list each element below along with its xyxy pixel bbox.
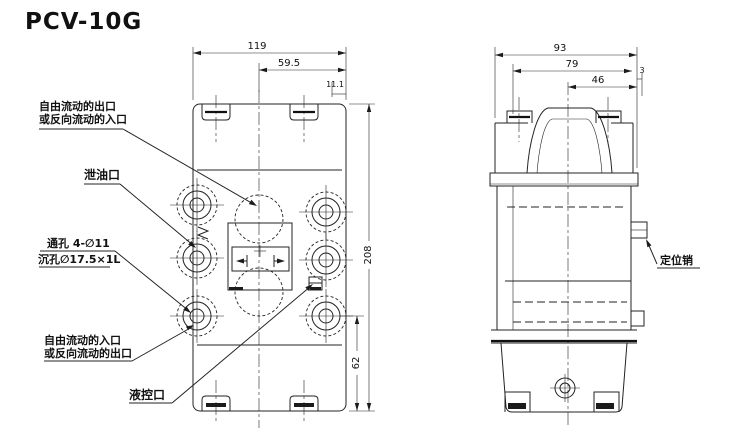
side-view (490, 47, 647, 428)
label-free-inlet: 自由流动的入口 或反向流动的出口 (44, 334, 132, 360)
page-title: PCV-10G (25, 9, 142, 35)
drawing-sheet: PCV-10G 自由流动的出口 或反向流动的入口 泄油口 通孔 4-∅11 沉孔… (0, 0, 729, 440)
dim-front-center-to-edge: 59.5 (272, 59, 306, 69)
port-top-right (299, 185, 353, 239)
dim-front-port-height: 62 (352, 351, 362, 375)
label-locating-pin: 定位销 (660, 254, 693, 267)
side-base (501, 343, 627, 412)
dim-side-body-width: 79 (558, 60, 586, 70)
label-free-inlet-line2: 或反向流动的出口 (44, 347, 132, 360)
label-free-outlet: 自由流动的出口 或反向流动的入口 (39, 100, 127, 126)
label-counterbore: 沉孔∅17.5×1L (38, 253, 120, 266)
label-free-outlet-line1: 自由流动的出口 (39, 100, 127, 113)
front-view (170, 47, 375, 428)
dim-front-overall-height: 208 (364, 241, 374, 269)
drawing-canvas (0, 0, 729, 440)
port-mid-right (299, 233, 353, 287)
dim-front-top-offset: 11.1 (323, 80, 347, 90)
port-mid-left (170, 231, 224, 285)
spool-chamber (228, 195, 292, 316)
label-drain-port: 泄油口 (84, 169, 120, 182)
label-free-inlet-line1: 自由流动的入口 (44, 334, 132, 347)
label-pilot-port: 液控口 (129, 389, 165, 402)
dim-side-center-to-edge: 46 (585, 76, 611, 86)
label-free-outlet-line2: 或反向流动的入口 (39, 113, 127, 126)
drain-symbol (198, 227, 208, 239)
dim-side-overall-width: 93 (545, 44, 575, 54)
label-through-hole: 通孔 4-∅11 (47, 237, 110, 250)
dim-front-overall-width: 119 (242, 42, 272, 52)
port-top-left (170, 178, 224, 232)
dim-side-pin-offset: 3 (635, 66, 649, 76)
front-dimensions (193, 47, 375, 411)
valve-body-outline (193, 104, 346, 411)
